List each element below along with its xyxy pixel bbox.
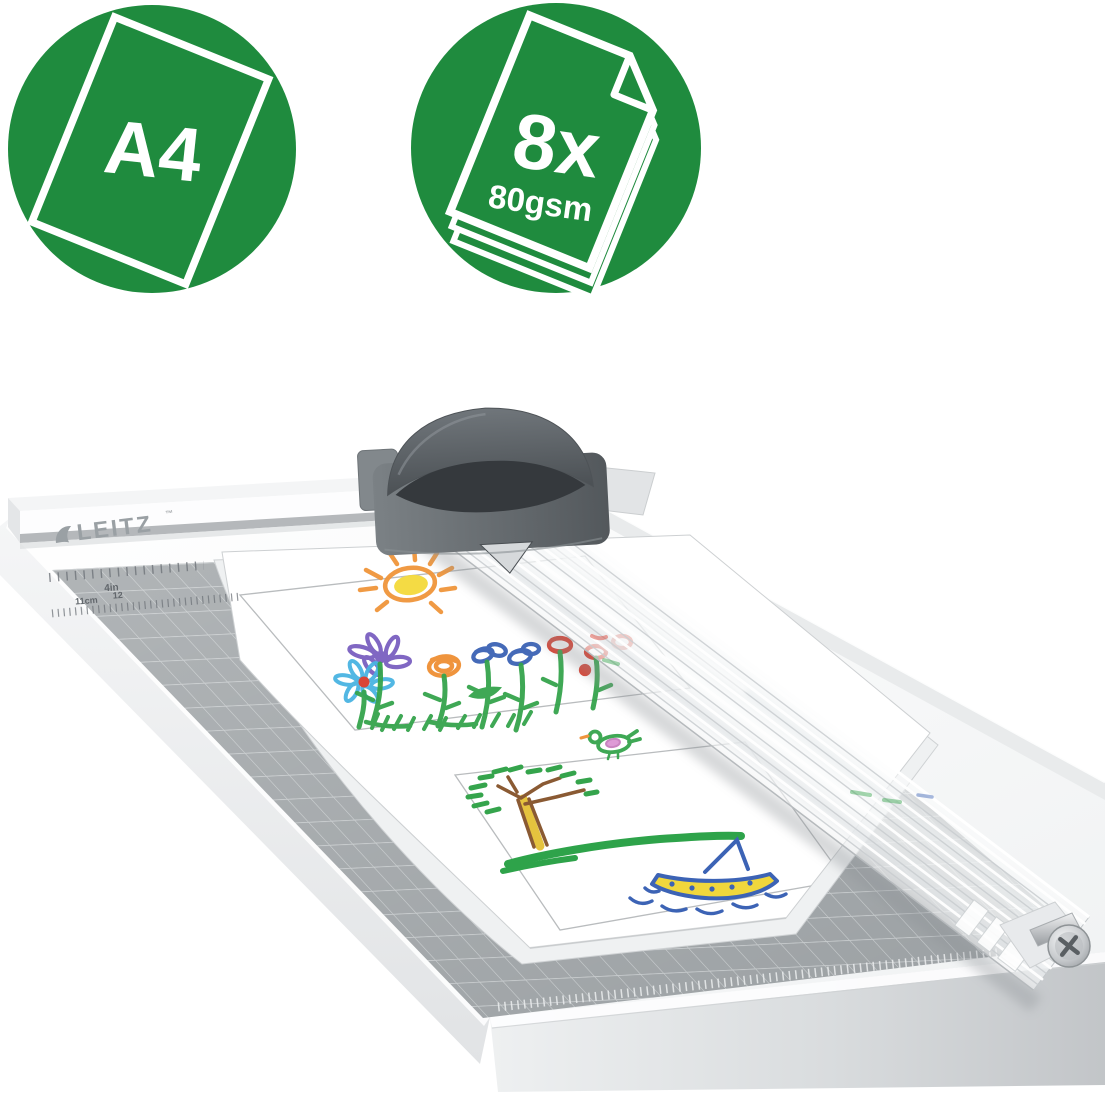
ruler-cm-next-label: 12	[112, 590, 123, 601]
a4-badge-icon: A4	[3, 1, 301, 297]
daisy-center	[359, 677, 370, 688]
ruler-cm-label: 11cm	[75, 595, 98, 607]
badge-capacity: 8x 80gsm	[406, 0, 706, 298]
trademark-symbol: ™	[165, 509, 174, 519]
paper-trimmer: LEITZ ™ 4in 11cm 12	[0, 380, 1105, 1100]
capacity-badge-icon: 8x 80gsm	[406, 0, 706, 298]
badge-paper-size: A4	[3, 1, 301, 297]
product-image: A4 8x 80gsm	[0, 0, 1105, 1100]
badge-count-label: 8x	[508, 95, 606, 194]
bird-beak	[581, 736, 588, 738]
badge-size-label: A4	[100, 104, 206, 199]
